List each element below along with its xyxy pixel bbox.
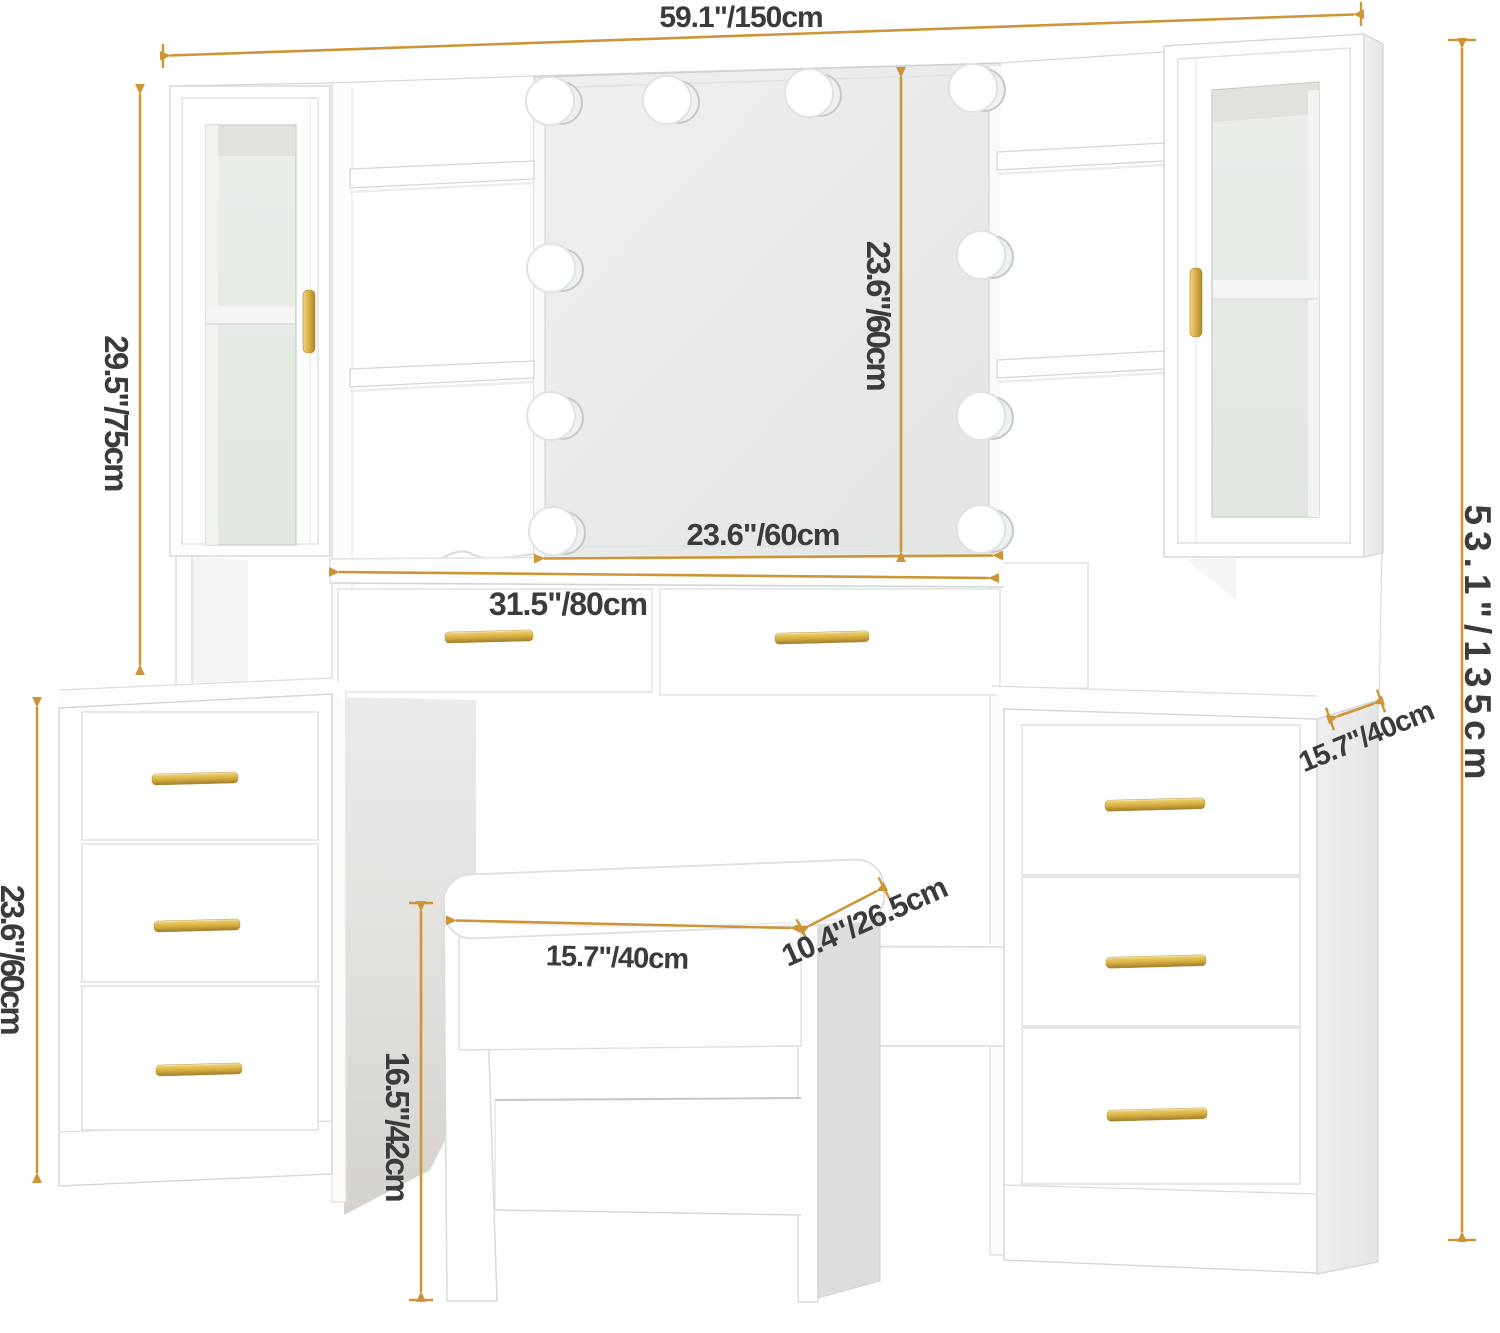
svg-text:29.5"/75cm: 29.5"/75cm: [98, 335, 135, 491]
svg-text:16.5"/42cm: 16.5"/42cm: [379, 1052, 416, 1202]
svg-text:53.1"/135cm: 53.1"/135cm: [1457, 504, 1498, 785]
svg-text:15.7"/40cm: 15.7"/40cm: [545, 940, 688, 975]
svg-text:31.5"/80cm: 31.5"/80cm: [489, 586, 647, 622]
svg-text:23.6"/60cm: 23.6"/60cm: [860, 241, 897, 391]
svg-text:23.6"/60cm: 23.6"/60cm: [0, 885, 31, 1035]
svg-text:59.1"/150cm: 59.1"/150cm: [659, 1, 822, 34]
svg-text:23.6"/60cm: 23.6"/60cm: [687, 517, 840, 552]
